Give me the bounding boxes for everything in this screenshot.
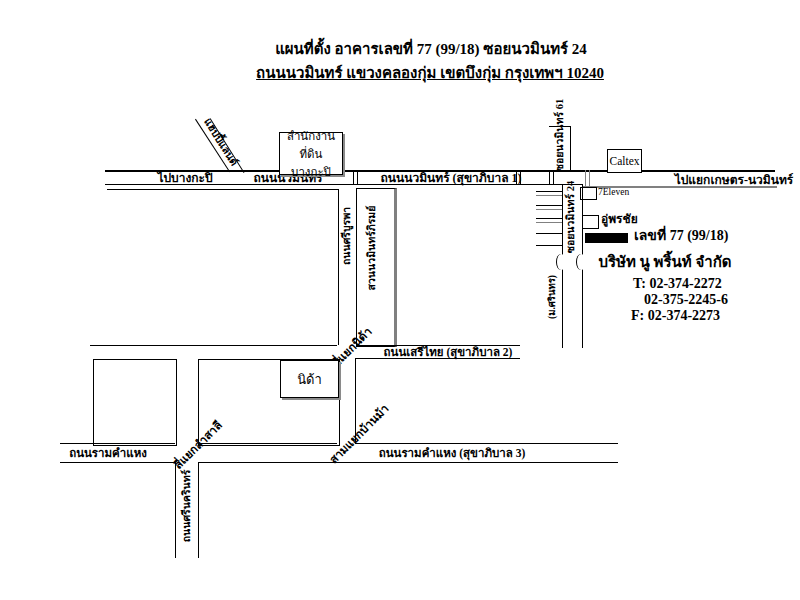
crossing-tick xyxy=(520,170,521,184)
crossing-tick xyxy=(589,170,590,187)
road-label-to-kaset-nawamin: ไปแยกเกษตร-นวมินทร์ xyxy=(675,174,794,187)
side-lane-tick xyxy=(536,218,562,219)
crossing-tick xyxy=(553,170,554,184)
company-name-label: บริษัท นู พริ้นท์ จำกัด xyxy=(599,255,732,271)
side-lane-tick xyxy=(536,205,562,206)
crossing-tick xyxy=(357,170,358,184)
building-address-label: เลขที่ 77 (99/18) xyxy=(634,229,728,244)
srinagarindra-west-line xyxy=(175,462,176,558)
crossing-tick xyxy=(516,170,517,184)
company-tel2-label: 02-375-2245-6 xyxy=(644,293,728,308)
land-office-label-line2: บางกะปิ xyxy=(291,163,331,181)
company-tel1-label: T: 02-374-2272 xyxy=(633,277,722,292)
seven-eleven-label: 7Eleven xyxy=(598,188,629,198)
road-label-soi-nawamin-24: ซอยนวมินทร์ 24 xyxy=(565,181,576,253)
ramkhamhaeng-south-line xyxy=(198,462,618,463)
park-label: สวนนวมินทร์ภิรมย์ xyxy=(366,206,377,291)
nida-box: นิด้า xyxy=(280,360,339,398)
side-lane-tick xyxy=(536,209,562,210)
land-office-label-line1: สำนักงานที่ดิน xyxy=(280,127,342,163)
location-map: แผนที่ตั้ง อาคารเลขที่ 77 (99/18) ซอยนวม… xyxy=(0,0,800,600)
block-edge-line xyxy=(338,189,339,345)
side-lane-tick xyxy=(536,233,562,234)
road-label-sri-burapha: ถนนศรีบูรพา xyxy=(341,207,352,265)
map-title-line1: แผนที่ตั้ง อาคารเลขที่ 77 (99/18) ซอยนวม… xyxy=(131,42,731,58)
road-label-serithai: ถนนเสรีไทย (สุขาภิบาล 2) xyxy=(384,346,513,358)
side-lane-tick xyxy=(536,245,562,246)
crossing-tick xyxy=(585,170,586,187)
company-fax-label: F: 02-374-2273 xyxy=(631,309,720,324)
road-label-to-bangkapi: ไปบางกะปิ xyxy=(157,172,212,185)
ramkhamhaeng-north-line xyxy=(198,443,337,444)
village-label: (ม.ศรินทร) xyxy=(548,275,558,319)
pornchai-garage-box xyxy=(582,215,599,229)
bridge-arc xyxy=(576,254,586,270)
side-lane-tick xyxy=(536,191,562,192)
road-label-soi-nawamin-61: ซอยนวมินทร์ 61 xyxy=(554,99,565,171)
land-office-box: สำนักงานที่ดิน บางกะปิ xyxy=(279,132,343,175)
pornchai-garage-label: อู่พรชัย xyxy=(601,213,638,226)
crossing-tick xyxy=(549,170,550,184)
road-label-nawamin-sukhaphiban1: ถนนนวมินทร์ (สุขาภิบาล 1) xyxy=(381,172,522,185)
road-label-ramkhamhaeng: ถนนรามคำแหง xyxy=(69,447,147,459)
caltex-box: Caltex xyxy=(607,149,642,173)
srinagarindra-east-line xyxy=(198,462,199,558)
ramkhamhaeng-north-line xyxy=(60,443,175,444)
target-building-marker xyxy=(585,233,628,243)
road-label-srinagarindra: ถนนศรีนครินทร์ xyxy=(181,470,192,543)
soi61-road-line xyxy=(570,126,571,171)
ramkhamhaeng-north-line xyxy=(355,443,618,444)
ramkhamhaeng-south-line xyxy=(60,462,175,463)
bridge-arc xyxy=(556,254,566,270)
serithai-road-south-line xyxy=(355,358,520,359)
crossing-tick xyxy=(353,170,354,184)
side-lane-tick xyxy=(536,195,562,196)
serithai-road-north-line xyxy=(90,345,337,346)
side-lane-tick xyxy=(536,222,562,223)
city-block xyxy=(93,359,177,446)
road-label-ramkhamhaeng-sukhaphiban3: ถนนรามคำแหง (สุขาภิบาล 3) xyxy=(379,447,526,459)
map-title-line2: ถนนนวมินทร์ แขวงคลองกุ่ม เขตบึงกุ่ม กรุง… xyxy=(130,66,730,82)
block-edge-line xyxy=(107,189,338,190)
